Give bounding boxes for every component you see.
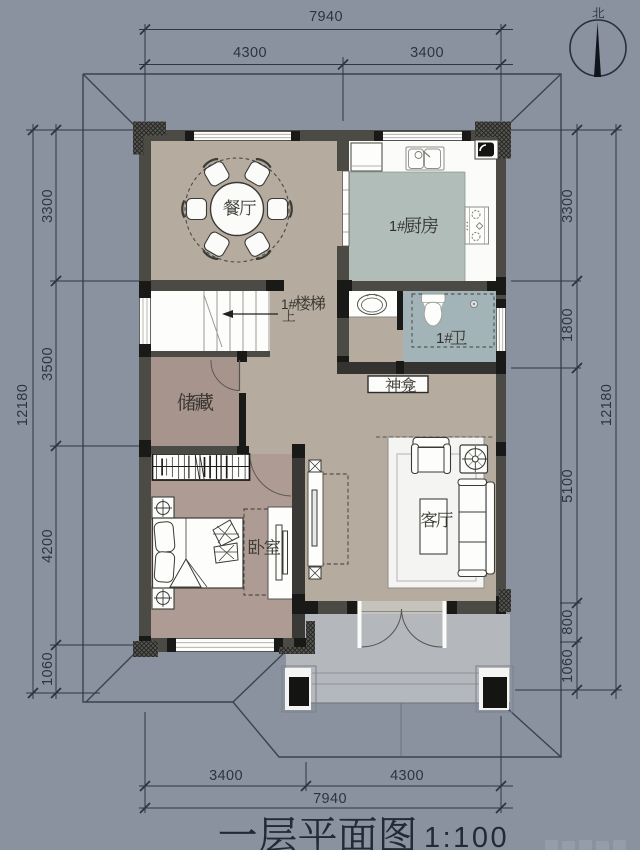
svg-text:1#: 1# — [389, 219, 405, 235]
svg-text:4300: 4300 — [233, 45, 267, 61]
svg-text:12180: 12180 — [599, 384, 615, 426]
svg-text:1:100: 1:100 — [424, 822, 509, 850]
svg-text:4200: 4200 — [40, 529, 56, 563]
svg-text:1800: 1800 — [560, 308, 576, 342]
svg-text:7940: 7940 — [309, 9, 343, 25]
svg-text:7940: 7940 — [313, 791, 347, 807]
svg-text:3500: 3500 — [40, 347, 56, 381]
svg-text:1060: 1060 — [560, 649, 576, 683]
svg-text:12180: 12180 — [15, 384, 31, 426]
svg-text:1060: 1060 — [40, 652, 56, 686]
svg-text:800: 800 — [560, 609, 576, 634]
svg-text:5100: 5100 — [560, 469, 576, 503]
svg-text:3300: 3300 — [40, 189, 56, 223]
svg-text:3300: 3300 — [560, 189, 576, 223]
svg-text:3400: 3400 — [410, 45, 444, 61]
svg-text:4300: 4300 — [390, 768, 424, 784]
svg-text:3400: 3400 — [209, 768, 243, 784]
svg-text:1#: 1# — [436, 330, 453, 347]
